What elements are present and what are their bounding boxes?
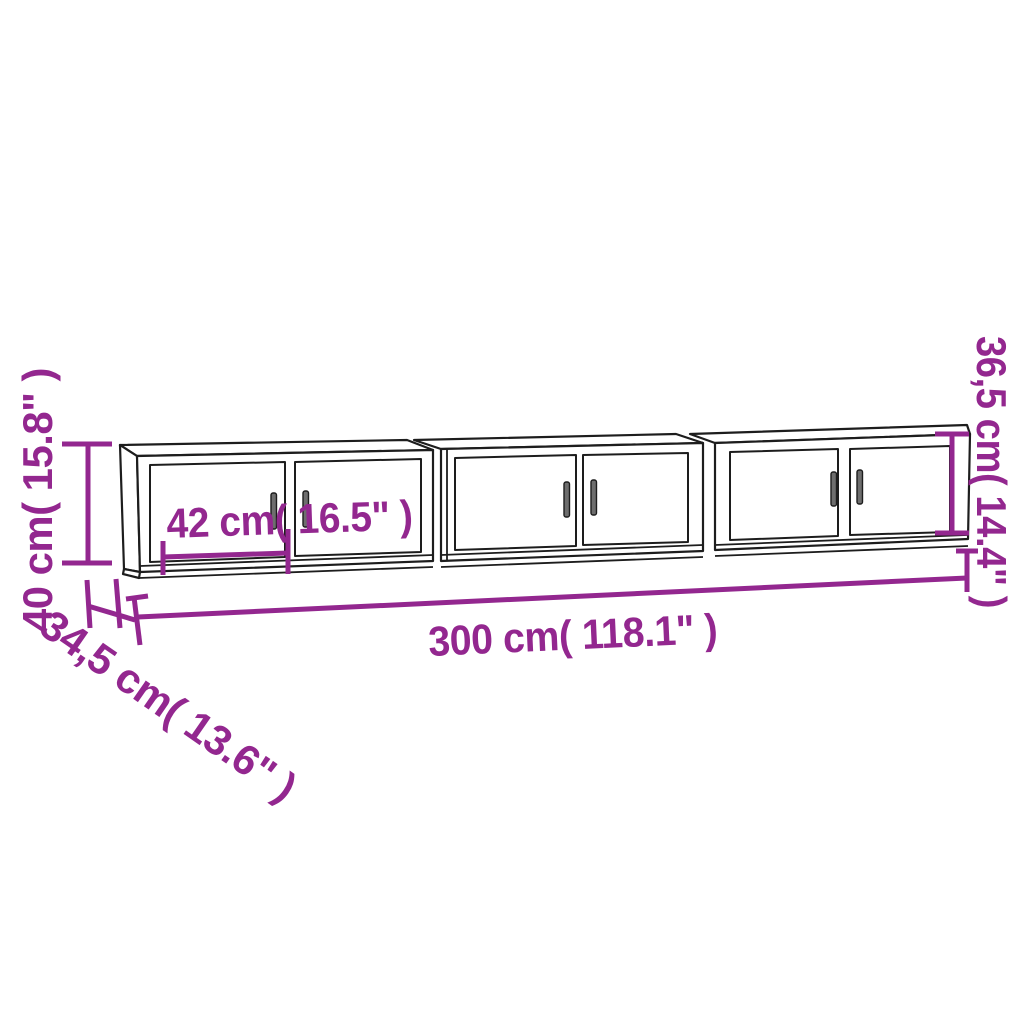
cabinet-middle-handle-right xyxy=(591,480,597,515)
cabinet-middle-door-left xyxy=(455,455,576,550)
cabinet-right xyxy=(690,425,970,556)
cabinet-middle xyxy=(414,434,703,567)
dimension-label-overall-width: 300 cm( 118.1" ) xyxy=(427,605,718,665)
dimension-line xyxy=(138,578,967,617)
dimension-overall-height: 40 cm( 15.8" ) xyxy=(14,368,112,632)
dimension-label-overall-height: 40 cm( 15.8" ) xyxy=(14,368,61,632)
cabinet-middle-door-right xyxy=(583,453,688,545)
cabinet-right-handle-right xyxy=(857,470,863,504)
dimension-tick-left xyxy=(134,597,140,645)
dimension-tick-mid xyxy=(116,579,120,628)
cabinet-right-door-right xyxy=(850,446,950,535)
dimension-line xyxy=(88,606,135,620)
dimension-label-front-height: 36,5 cm( 14.4" ) xyxy=(968,336,1015,608)
product-dimension-image: 40 cm( 15.8" ) 42 cm( 16.5" ) 36,5 cm( 1… xyxy=(0,0,1024,1024)
dimension-label-door-width: 42 cm( 16.5" ) xyxy=(166,491,413,547)
dimension-diagram-svg: 40 cm( 15.8" ) 42 cm( 16.5" ) 36,5 cm( 1… xyxy=(0,0,1024,1024)
dimension-tick-left-cap xyxy=(126,596,148,599)
cabinet-right-door-left xyxy=(730,449,838,540)
cabinet-middle-handle-left xyxy=(564,482,570,517)
dimension-label-depth: 34,5 cm( 13.6" ) xyxy=(32,601,305,811)
cabinet-right-handle-left xyxy=(831,472,837,506)
